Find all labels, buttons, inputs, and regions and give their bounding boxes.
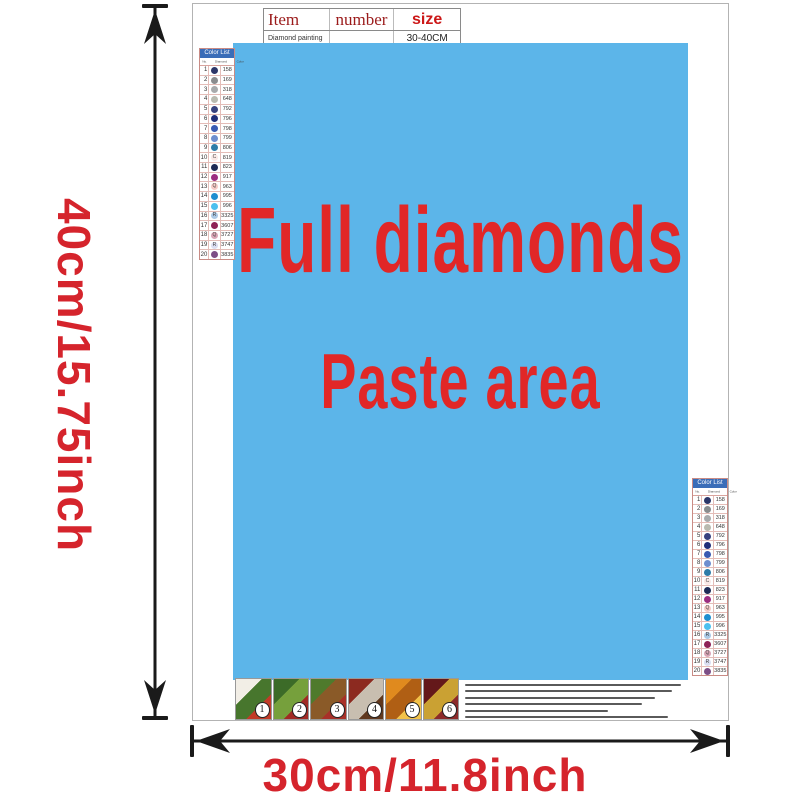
- instruction-text-line: [465, 690, 672, 692]
- paste-area-line1: Full diamonds: [233, 186, 688, 293]
- color-number: 8: [200, 135, 208, 141]
- diamond-cell: [208, 85, 220, 94]
- diamond-color-dot: [704, 569, 711, 576]
- dmc-color-code: 3747: [714, 659, 727, 665]
- color-number: 6: [200, 116, 208, 122]
- color-number: 9: [200, 145, 208, 151]
- instruction-fine-print: [465, 684, 681, 718]
- dmc-color-code: 917: [714, 596, 727, 602]
- color-number: 17: [693, 641, 701, 647]
- color-list-column-headers: No.DiamondColor: [200, 58, 234, 66]
- vertical-dimension-arrow: [141, 2, 169, 724]
- color-number: 7: [200, 126, 208, 132]
- color-list-row: 9806: [693, 568, 727, 577]
- color-number: 18: [200, 232, 208, 238]
- diamond-color-dot: [211, 174, 218, 181]
- dmc-color-code: 169: [221, 77, 234, 83]
- diamond-cell: [701, 541, 713, 549]
- dmc-color-code: 823: [714, 587, 727, 593]
- color-list-row: 203835: [693, 667, 727, 675]
- diamond-cell: [208, 66, 220, 75]
- diamond-color-dot: [211, 86, 218, 93]
- diamond-cell: [701, 640, 713, 648]
- dmc-color-code: 995: [221, 193, 234, 199]
- color-number: 1: [693, 497, 701, 503]
- color-list-table-left: Color ListNo.DiamondColor115821693318464…: [199, 48, 235, 260]
- diamond-cell: [701, 559, 713, 567]
- dmc-color-code: 3747: [221, 242, 234, 248]
- diamond-cell: [208, 124, 220, 133]
- color-list-column-headers: No.DiamondColor: [693, 488, 727, 496]
- color-list-row: 12917: [693, 595, 727, 604]
- color-list-column-label: Diamond: [708, 490, 720, 493]
- step-thumbnail: 5: [385, 678, 422, 720]
- color-number: 15: [200, 203, 208, 209]
- width-dimension-label: 30cm/11.8inch: [263, 748, 588, 802]
- color-number: 13: [693, 605, 701, 611]
- instruction-text-line: [465, 703, 642, 705]
- height-dimension-label: 40cm/15.75inch: [47, 198, 101, 552]
- diamond-color-dot: [704, 524, 711, 531]
- step-number-badge: 4: [367, 702, 382, 718]
- color-list-row: 18Q3727: [200, 231, 234, 241]
- dmc-color-code: 3607: [221, 223, 234, 229]
- diamond-color-dot: [704, 596, 711, 603]
- color-list-row: 4648: [200, 95, 234, 105]
- diamond-cell: [701, 586, 713, 594]
- dmc-color-code: 318: [714, 515, 727, 521]
- diamond-cell: R: [208, 212, 220, 221]
- diamond-color-dot: [211, 67, 218, 74]
- color-list-column-label: No.: [695, 490, 700, 493]
- diamond-cell: [208, 115, 220, 124]
- dmc-color-code: 648: [714, 524, 727, 530]
- item-table-header-row: Item number size: [264, 9, 460, 31]
- dmc-color-code: 996: [714, 623, 727, 629]
- diamond-cell: [701, 523, 713, 531]
- color-number: 13: [200, 184, 208, 190]
- color-number: 11: [693, 587, 701, 593]
- diamond-cell: C: [208, 153, 220, 162]
- dmc-color-code: 3607: [714, 641, 727, 647]
- diamond-color-dot: [704, 587, 711, 594]
- diamond-cell: R: [701, 658, 713, 666]
- dmc-color-code: 796: [221, 116, 234, 122]
- dmc-color-code: 3835: [714, 668, 727, 674]
- diamond-color-dot: [211, 106, 218, 113]
- dmc-color-code: 995: [714, 614, 727, 620]
- color-list-column-label: Color: [237, 60, 244, 63]
- color-list-row: 1158: [693, 496, 727, 505]
- color-list-row: 173607: [693, 640, 727, 649]
- diamond-cell: [701, 595, 713, 603]
- item-header-cell: Item: [264, 9, 329, 30]
- diamond-cell: [208, 202, 220, 211]
- dmc-color-code: 806: [714, 569, 727, 575]
- diamond-color-dot: [211, 251, 218, 258]
- diamond-color-dot: [704, 506, 711, 513]
- diamond-color-dot: Q: [211, 183, 218, 190]
- color-list-row: 173607: [200, 221, 234, 231]
- diamond-cell: C: [701, 577, 713, 585]
- color-list-row: 13Q963: [693, 604, 727, 613]
- dmc-color-code: 318: [221, 87, 234, 93]
- diamond-cell: [701, 613, 713, 621]
- color-list-row: 14995: [693, 613, 727, 622]
- step-thumbnail: 2: [273, 678, 310, 720]
- dmc-color-code: 823: [221, 164, 234, 170]
- color-number: 3: [200, 87, 208, 93]
- color-number: 9: [693, 569, 701, 575]
- step-number-badge: 6: [442, 702, 457, 718]
- color-list-row: 6796: [693, 541, 727, 550]
- diamond-color-dot: [704, 542, 711, 549]
- diamond-cell: [208, 221, 220, 230]
- color-number: 10: [200, 155, 208, 161]
- diamond-color-dot: [704, 497, 711, 504]
- diamond-color-dot: [704, 668, 711, 675]
- instruction-text-line: [465, 716, 668, 718]
- size-header-cell: size: [393, 9, 460, 30]
- instruction-step-thumbnails: 123456: [235, 678, 459, 720]
- color-list-row: 8799: [693, 559, 727, 568]
- diamond-cell: [701, 622, 713, 630]
- diamond-color-dot: R: [211, 242, 218, 249]
- diamond-cell: [701, 550, 713, 558]
- color-list-column-label: Diamond: [215, 60, 227, 63]
- color-list-row: 16R3325: [200, 212, 234, 222]
- diamond-cell: Q: [701, 604, 713, 612]
- diamond-color-dot: [211, 222, 218, 229]
- color-list-row: 2169: [200, 76, 234, 86]
- color-number: 5: [200, 106, 208, 112]
- color-list-row: 5792: [693, 532, 727, 541]
- color-number: 10: [693, 578, 701, 584]
- dmc-color-code: 792: [714, 533, 727, 539]
- color-number: 20: [693, 668, 701, 674]
- diamond-cell: [208, 173, 220, 182]
- diamond-color-dot: [704, 614, 711, 621]
- color-number: 4: [200, 96, 208, 102]
- number-header-cell: number: [329, 9, 394, 30]
- canvas-sheet: Item number size Diamond painting 30-40C…: [192, 3, 729, 721]
- diamond-cell: [208, 144, 220, 153]
- color-number: 5: [693, 533, 701, 539]
- color-list-row: 7798: [200, 124, 234, 134]
- diamond-cell: [208, 250, 220, 259]
- diamond-color-dot: C: [704, 578, 711, 585]
- dmc-color-code: 819: [221, 155, 234, 161]
- dmc-color-code: 648: [221, 96, 234, 102]
- diamond-color-dot: [211, 96, 218, 103]
- color-list-row: 18Q3727: [693, 649, 727, 658]
- diamond-cell: Q: [701, 649, 713, 657]
- diamond-color-dot: [704, 533, 711, 540]
- diamond-cell: [208, 76, 220, 85]
- step-thumbnail: 3: [310, 678, 347, 720]
- color-list-row: 203835: [200, 250, 234, 259]
- color-number: 6: [693, 542, 701, 548]
- step-number-badge: 2: [292, 702, 307, 718]
- color-list-row: 10C819: [200, 153, 234, 163]
- diamond-color-dot: R: [704, 659, 711, 666]
- diamond-color-dot: R: [704, 632, 711, 639]
- dmc-color-code: 996: [221, 203, 234, 209]
- diamond-color-dot: [704, 551, 711, 558]
- color-number: 20: [200, 252, 208, 258]
- color-number: 14: [693, 614, 701, 620]
- diamond-cell: [701, 667, 713, 675]
- dmc-color-code: 792: [221, 106, 234, 112]
- color-list-row: 12917: [200, 173, 234, 183]
- diamond-color-dot: [211, 164, 218, 171]
- diamond-color-dot: C: [211, 154, 218, 161]
- dmc-color-code: 798: [714, 551, 727, 557]
- color-list-row: 19R3747: [693, 658, 727, 667]
- color-list-row: 10C819: [693, 577, 727, 586]
- dmc-color-code: 798: [221, 126, 234, 132]
- diamond-color-dot: [211, 193, 218, 200]
- diamond-cell: [701, 496, 713, 504]
- color-list-column-label: No.: [202, 60, 207, 63]
- step-thumbnail: 1: [235, 678, 272, 720]
- diamond-color-dot: [704, 515, 711, 522]
- dmc-color-code: 3325: [221, 213, 234, 219]
- dmc-color-code: 963: [221, 184, 234, 190]
- instruction-text-line: [465, 697, 655, 699]
- color-number: 18: [693, 650, 701, 656]
- color-list-row: 3318: [693, 514, 727, 523]
- dmc-color-code: 3727: [221, 232, 234, 238]
- color-list-row: 4648: [693, 523, 727, 532]
- color-number: 12: [693, 596, 701, 602]
- diamond-color-dot: [704, 560, 711, 567]
- color-list-row: 3318: [200, 85, 234, 95]
- diamond-color-dot: [211, 203, 218, 210]
- diamond-color-dot: [704, 641, 711, 648]
- dmc-color-code: 796: [714, 542, 727, 548]
- color-list-row: 16R3325: [693, 631, 727, 640]
- dmc-color-code: 917: [221, 174, 234, 180]
- step-thumbnail: 4: [348, 678, 385, 720]
- dmc-color-code: 158: [714, 497, 727, 503]
- diamond-cell: [208, 105, 220, 114]
- diamond-cell: [208, 163, 220, 172]
- color-number: 17: [200, 223, 208, 229]
- color-list-table-right: Color ListNo.DiamondColor115821693318464…: [692, 478, 728, 676]
- diamond-cell: [701, 568, 713, 576]
- step-number-badge: 3: [330, 702, 345, 718]
- diamond-color-dot: R: [211, 212, 218, 219]
- diamond-color-dot: [211, 115, 218, 122]
- diamond-color-dot: [211, 135, 218, 142]
- color-number: 11: [200, 164, 208, 170]
- dmc-color-code: 963: [714, 605, 727, 611]
- color-list-row: 14995: [200, 192, 234, 202]
- color-list-row: 11823: [693, 586, 727, 595]
- paste-area-line2: Paste area: [233, 337, 688, 427]
- dmc-color-code: 799: [714, 560, 727, 566]
- diamond-cell: [208, 192, 220, 201]
- diamond-color-dot: [211, 77, 218, 84]
- color-number: 16: [200, 213, 208, 219]
- color-number: 2: [693, 506, 701, 512]
- color-number: 14: [200, 193, 208, 199]
- diamond-cell: Q: [208, 182, 220, 191]
- color-number: 8: [693, 560, 701, 566]
- color-number: 15: [693, 623, 701, 629]
- color-number: 19: [200, 242, 208, 248]
- dmc-color-code: 169: [714, 506, 727, 512]
- item-info-table: Item number size Diamond painting 30-40C…: [263, 8, 461, 47]
- diamond-color-dot: [211, 125, 218, 132]
- diamond-cell: [701, 505, 713, 513]
- diamond-color-dot: Q: [704, 605, 711, 612]
- color-list-title: Color List: [693, 479, 727, 488]
- color-list-row: 15996: [200, 202, 234, 212]
- color-number: 12: [200, 174, 208, 180]
- diamond-cell: [701, 532, 713, 540]
- dmc-color-code: 819: [714, 578, 727, 584]
- dmc-color-code: 158: [221, 67, 234, 73]
- color-number: 4: [693, 524, 701, 530]
- color-list-row: 6796: [200, 115, 234, 125]
- dmc-color-code: 3325: [714, 632, 727, 638]
- step-number-badge: 1: [255, 702, 270, 718]
- diamond-cell: [208, 95, 220, 104]
- diamond-cell: Q: [208, 231, 220, 240]
- dmc-color-code: 3835: [221, 252, 234, 258]
- color-list-row: 5792: [200, 105, 234, 115]
- step-number-badge: 5: [405, 702, 420, 718]
- color-number: 19: [693, 659, 701, 665]
- color-list-row: 7798: [693, 550, 727, 559]
- dmc-color-code: 3727: [714, 650, 727, 656]
- color-list-row: 8799: [200, 134, 234, 144]
- color-list-row: 19R3747: [200, 241, 234, 251]
- color-list-row: 2169: [693, 505, 727, 514]
- color-list-title: Color List: [200, 49, 234, 58]
- diamond-color-dot: Q: [211, 232, 218, 239]
- diamond-cell: R: [701, 631, 713, 639]
- color-number: 7: [693, 551, 701, 557]
- paste-area: Full diamonds Paste area: [233, 43, 688, 680]
- diamond-color-dot: [704, 623, 711, 630]
- diamond-color-dot: [211, 144, 218, 151]
- color-list-row: 9806: [200, 144, 234, 154]
- diamond-cell: [701, 514, 713, 522]
- color-number: 1: [200, 67, 208, 73]
- dmc-color-code: 799: [221, 135, 234, 141]
- diamond-cell: [208, 134, 220, 143]
- diamond-cell: R: [208, 241, 220, 250]
- color-number: 2: [200, 77, 208, 83]
- diamond-color-dot: Q: [704, 650, 711, 657]
- instruction-text-line: [465, 710, 608, 712]
- dmc-color-code: 806: [221, 145, 234, 151]
- color-number: 16: [693, 632, 701, 638]
- step-thumbnail: 6: [423, 678, 460, 720]
- color-list-row: 11823: [200, 163, 234, 173]
- color-list-row: 13Q963: [200, 182, 234, 192]
- color-list-row: 15996: [693, 622, 727, 631]
- color-list-row: 1158: [200, 66, 234, 76]
- color-number: 3: [693, 515, 701, 521]
- instruction-text-line: [465, 684, 681, 686]
- color-list-column-label: Color: [730, 490, 737, 493]
